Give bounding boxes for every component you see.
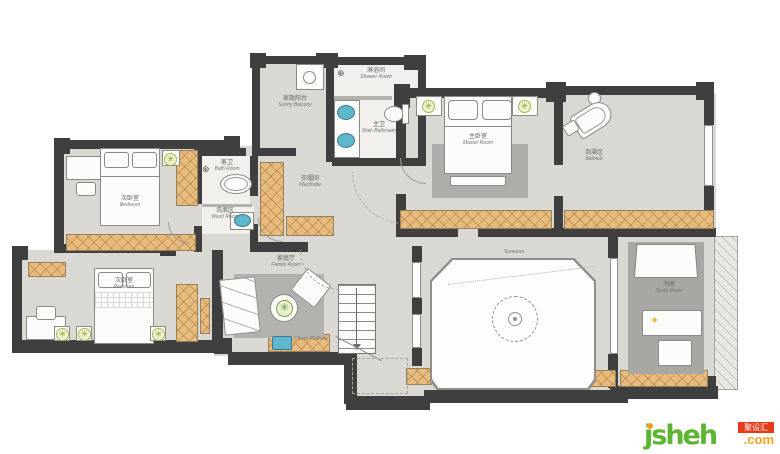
label-en: Wardrobe	[286, 183, 334, 189]
wall-segment	[704, 95, 714, 125]
bed-bench	[450, 176, 506, 186]
lamp-icon: ✳	[152, 328, 165, 341]
label-en: Sunroom	[486, 250, 542, 256]
wall-segment	[346, 396, 430, 410]
watermark: jsheh 聚设汇 .com	[644, 420, 776, 452]
wardrobe-cabinet	[286, 216, 334, 236]
window	[412, 262, 421, 298]
room-label-bedroom2: 次卧室 Bedroom	[94, 278, 154, 291]
lamp-icon: ✳	[518, 100, 531, 113]
chandelier-center	[513, 317, 517, 321]
watermark-brand: jsheh	[644, 420, 716, 451]
watermark-j-dot	[647, 423, 653, 429]
bed-line	[100, 176, 160, 177]
sink	[337, 133, 355, 148]
desk-lamp-icon: ✦	[650, 314, 659, 327]
partition-line	[202, 204, 252, 207]
wardrobe-cabinet	[564, 210, 714, 229]
bed-line	[444, 126, 512, 127]
wall-segment	[336, 57, 410, 65]
chair	[76, 182, 96, 196]
label-closet-platform: Closet Platform	[292, 337, 330, 343]
room-label-laundry: 家政阳台 Sunny Balcony	[262, 96, 328, 109]
wall-segment	[562, 86, 702, 95]
room-label-study: 书房 Study Room	[644, 282, 694, 295]
wardrobe-cabinet	[400, 210, 552, 229]
toilet-tank	[402, 104, 409, 124]
pillow	[132, 152, 157, 168]
room-label-guest-bath: 客卫 Bath Room	[204, 160, 250, 173]
label-en: Main Bathroom	[348, 129, 410, 135]
label-en: Closet Platform	[292, 337, 330, 343]
watermark-tld: .com	[738, 433, 774, 446]
window	[704, 125, 713, 186]
label-en: Bedroom	[94, 285, 154, 291]
sofa	[219, 276, 261, 335]
desk	[66, 156, 102, 180]
wall-segment	[228, 352, 356, 365]
wall-segment	[412, 298, 422, 314]
label-en: Study Room	[644, 289, 694, 295]
room-label-cloak: 衣帽间 Wardrobe	[286, 176, 334, 189]
wardrobe-cabinet	[200, 298, 210, 334]
wall-segment	[478, 228, 716, 237]
wardrobe-cabinet	[176, 284, 198, 342]
label-en: Bedroom	[100, 203, 160, 209]
lamp-icon: ✳	[56, 328, 69, 341]
wall-segment	[12, 258, 22, 344]
sofa-study-inner	[635, 245, 697, 277]
chandelier	[492, 296, 538, 342]
platform-fixture	[272, 336, 292, 350]
room-label-sunroom: Sunroom	[486, 250, 542, 256]
room-label-master-bath: 主卫 Main Bathroom	[348, 122, 410, 135]
wall-segment	[412, 348, 422, 366]
bathtub-inner	[224, 177, 248, 191]
wall-segment	[264, 56, 318, 64]
wall-segment	[326, 58, 334, 162]
wall-segment	[412, 246, 422, 262]
floor-plan: ✳ ⊕ ⊕ ✳ ✳ ✳ ✳ ✳ ✳	[0, 0, 780, 454]
cabinet	[406, 368, 432, 385]
label-en: Wash Room	[202, 215, 248, 221]
wall-segment	[252, 148, 296, 156]
chair	[36, 306, 56, 320]
room-label-shower: 淋浴间 Shower Room	[348, 68, 404, 81]
window	[412, 314, 421, 348]
lamp-icon: ✳	[422, 100, 435, 113]
pillow	[482, 100, 512, 120]
pillow	[448, 100, 478, 120]
wall-segment	[608, 230, 618, 258]
label-en: Family Room	[256, 263, 316, 269]
room-label-family: 家庭厅 Family Room	[256, 256, 316, 269]
pillow	[104, 152, 129, 168]
window	[610, 258, 618, 354]
plant-icon: ✳	[276, 300, 293, 317]
wall-segment	[554, 93, 563, 165]
room-label-bathtub: 泡澡区 Bathtub	[566, 150, 622, 163]
wall-segment	[194, 148, 246, 156]
watermark-right: 聚设汇 .com	[738, 422, 774, 446]
label-en: Bath Room	[204, 167, 250, 173]
toilet	[384, 106, 404, 122]
room-label-master: 主卧室 Master Room	[444, 134, 512, 147]
label-en: Sunny Balcony	[262, 103, 328, 109]
wall-segment	[54, 152, 64, 250]
label-en: Shower Room	[348, 75, 404, 81]
lamp-icon: ✳	[164, 153, 177, 166]
washer-drum	[303, 71, 316, 84]
shower-icon: ⊕	[337, 68, 345, 79]
sofa-study	[634, 244, 698, 278]
room-label-bedroom1: 次卧室 Bedroom	[100, 196, 160, 209]
blanket	[95, 292, 153, 308]
entry-landing	[352, 358, 408, 394]
wall-segment	[250, 156, 258, 196]
stair-centerline	[356, 288, 357, 344]
label-en: Master Room	[444, 141, 512, 147]
wall-segment	[424, 390, 628, 403]
balcony-hatch-strip	[714, 236, 738, 390]
chair	[658, 340, 692, 366]
wall-segment	[396, 228, 458, 237]
lamp-icon: ✳	[78, 328, 91, 341]
room-label-wash: 洗漱区 Wash Room	[202, 208, 248, 221]
wall-segment	[252, 60, 260, 152]
wardrobe-cabinet	[28, 262, 66, 277]
label-en: Bathtub	[566, 157, 622, 163]
sink	[337, 105, 355, 120]
